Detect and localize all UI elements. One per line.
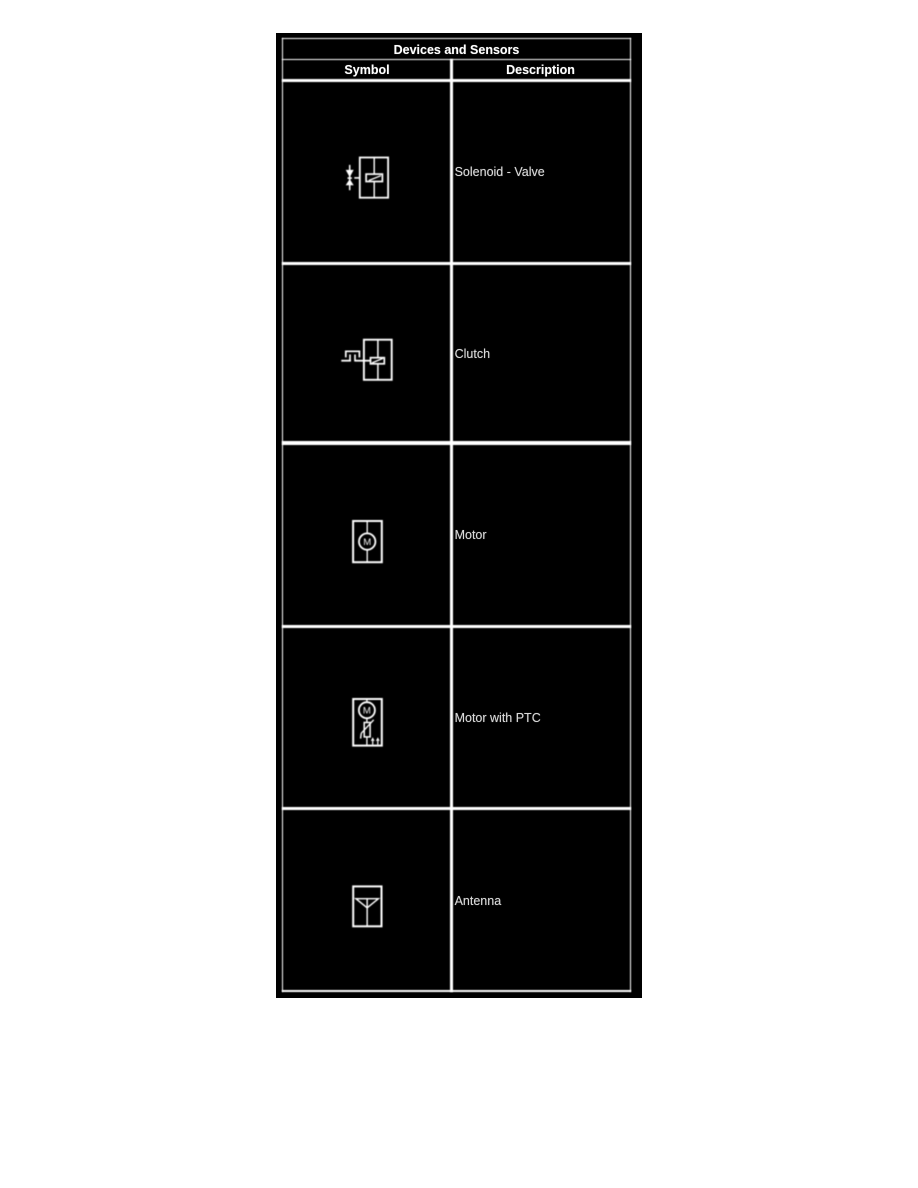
svg-text:M: M: [363, 537, 371, 548]
svg-text:M: M: [363, 706, 371, 717]
